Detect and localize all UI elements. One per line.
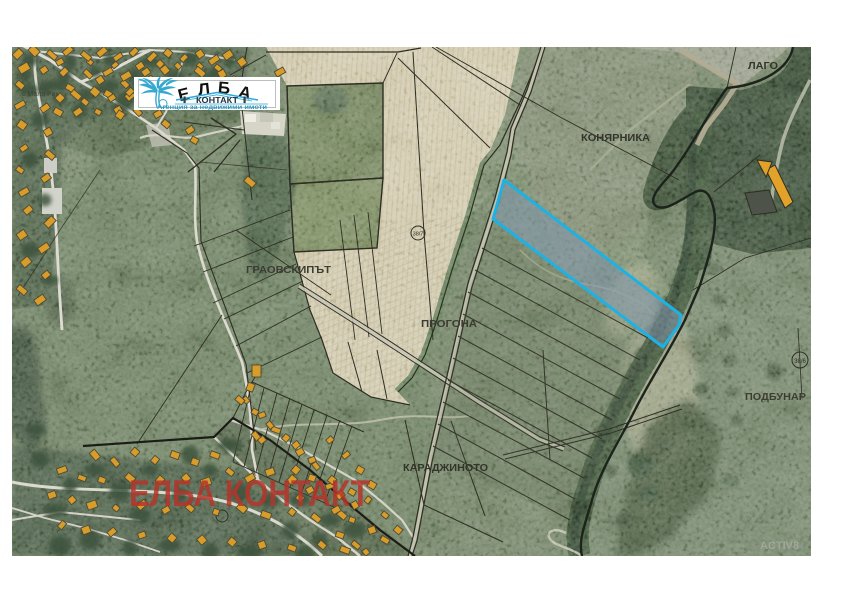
svg-text:ПОДБУНАР: ПОДБУНАР	[745, 392, 806, 403]
svg-text:38/6: 38/6	[794, 359, 806, 365]
svg-text:ЕЛБА КОНТАКТ: ЕЛБА КОНТАКТ	[129, 473, 370, 514]
svg-text:Агенция за недвижими имоти: Агенция за недвижими имоти	[157, 105, 267, 111]
svg-text:38/7: 38/7	[413, 232, 424, 238]
svg-text:КАРАДЖИНОТО: КАРАДЖИНОТО	[403, 463, 488, 474]
svg-text:ГРАОВСКИПЪТ: ГРАОВСКИПЪТ	[246, 264, 332, 276]
svg-text:ЛАГО: ЛАГО	[748, 60, 778, 72]
svg-text:ПРОГОНА: ПРОГОНА	[421, 318, 477, 330]
svg-text:КОНЯРНИКА: КОНЯРНИКА	[581, 132, 650, 144]
svg-text:с Мала Рак: с Мала Рак	[22, 91, 59, 98]
svg-text:ACTIV8: ACTIV8	[760, 540, 799, 552]
